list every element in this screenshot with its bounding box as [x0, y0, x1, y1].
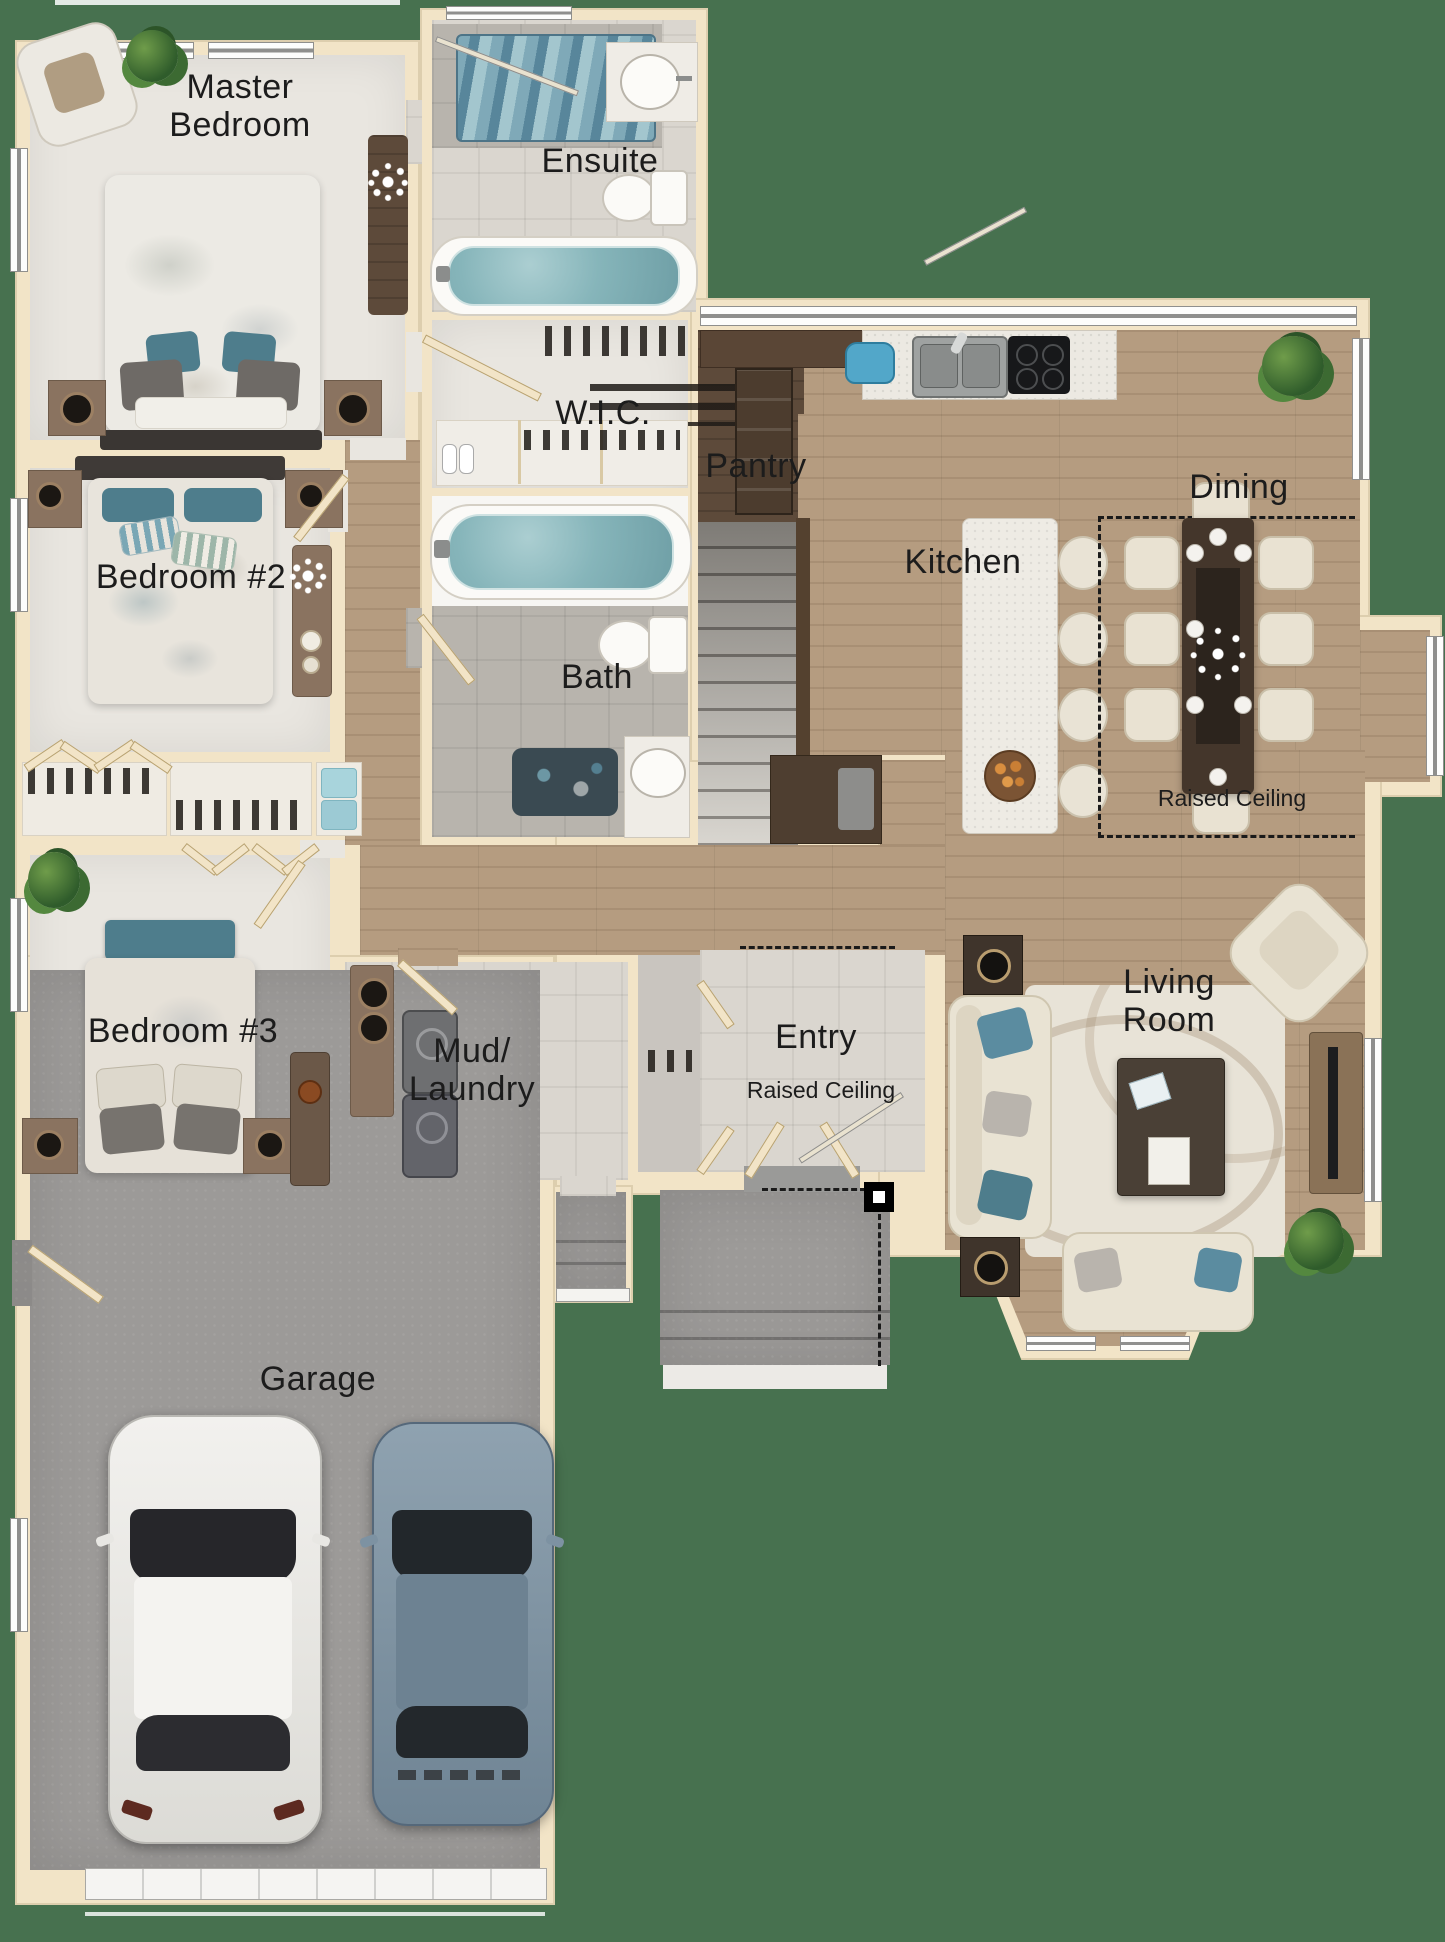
burner-icon	[1016, 344, 1038, 366]
plant-dining	[1262, 336, 1324, 396]
dining-bay-floor	[1360, 630, 1430, 782]
section-cut-mark	[924, 207, 1027, 266]
gray-pillow	[99, 1103, 165, 1155]
entry-raised-ceiling-line	[740, 946, 895, 949]
burner-icon	[1016, 368, 1038, 390]
window-bedroom3-left	[10, 898, 28, 1012]
label-entry: Entry	[716, 1018, 916, 1056]
kitchen-double-sink	[912, 336, 1008, 398]
entry-floor	[700, 950, 925, 1172]
silver-pillow	[1073, 1246, 1123, 1293]
entry-closet-shoes	[648, 1050, 692, 1072]
blue-kettle-icon	[845, 342, 895, 384]
dining-chair	[1124, 612, 1180, 666]
porch-post	[864, 1182, 894, 1212]
window-master-top-2	[208, 42, 314, 59]
car-windshield	[392, 1510, 532, 1580]
burner-icon	[1042, 368, 1064, 390]
window-garage-left	[10, 1518, 28, 1632]
bedroom3-bed	[85, 958, 255, 1173]
sandal-icon	[459, 444, 474, 474]
label-kitchen: Kitchen	[863, 543, 1063, 581]
label-master-bedroom: Master Bedroom	[150, 68, 330, 144]
porch-dashed-line	[878, 1214, 881, 1366]
teal-pillow	[184, 488, 262, 522]
window-ensuite-top	[446, 6, 572, 20]
label-bath: Bath	[497, 658, 697, 696]
window-dining-bay	[1426, 636, 1444, 776]
window-living-bay-2	[1120, 1336, 1190, 1351]
blue-pillow	[1193, 1246, 1243, 1293]
car-taillight	[121, 1799, 154, 1822]
window-dining-right	[1352, 338, 1370, 480]
teal-pillow	[976, 1168, 1034, 1221]
landing-step-line	[556, 1262, 626, 1265]
driveway-trim	[85, 1912, 545, 1916]
dining-chair	[1258, 536, 1314, 590]
floor-plan: Master Bedroom Ensuite W.I.C. Pantry Kit…	[0, 0, 1445, 1942]
eave-trim	[55, 0, 400, 5]
landing-step-line	[556, 1240, 626, 1243]
car-rear-window	[136, 1715, 290, 1771]
bath-sink	[630, 748, 686, 798]
place-setting	[1209, 768, 1227, 786]
window-living-bay-1	[1026, 1336, 1096, 1351]
car-roof	[134, 1577, 292, 1719]
side-table	[963, 935, 1023, 995]
entry-cabinet-inset	[838, 768, 874, 830]
console-basket	[358, 978, 390, 1010]
nightstand-bowl	[336, 392, 370, 426]
tv-icon	[1328, 1047, 1338, 1179]
car-windshield	[130, 1509, 296, 1583]
bedroom3-footboard-bench	[105, 920, 235, 960]
candle-icon	[302, 656, 320, 674]
blue-towels	[321, 800, 357, 830]
porch-step-line	[660, 1310, 890, 1313]
place-setting	[1234, 696, 1252, 714]
tv-console	[1309, 1032, 1363, 1194]
wic-hanging-clothes	[545, 326, 685, 356]
garage-to-landing-door	[556, 1288, 630, 1302]
place-setting	[1186, 696, 1204, 714]
silver-pillow	[981, 1090, 1032, 1138]
side-table-decor-icon	[974, 1251, 1008, 1285]
loveseat	[1062, 1232, 1254, 1332]
window-kitchen-dining-top	[700, 306, 1357, 326]
sink-basin	[962, 344, 1000, 388]
tub-faucet-icon	[436, 266, 450, 282]
garage-landing-floor	[556, 1192, 626, 1296]
tub-faucet-icon	[434, 540, 450, 558]
car-rear-grille	[398, 1770, 526, 1780]
place-setting	[1209, 528, 1227, 546]
label-ensuite: Ensuite	[500, 142, 700, 180]
place-setting	[1234, 544, 1252, 562]
window-living-right	[1364, 1038, 1382, 1202]
candle-icon	[300, 630, 322, 652]
plant-living	[1288, 1212, 1344, 1270]
master-door-gap	[350, 438, 406, 460]
porch-dashed-line	[762, 1188, 866, 1191]
armchair-pillow	[42, 50, 108, 116]
nightstand-decor	[36, 482, 64, 510]
label-wic: W.I.C.	[503, 394, 703, 432]
front-walkway	[663, 1365, 887, 1389]
label-dining: Dining	[1139, 468, 1339, 506]
ensuite-tub-water	[448, 246, 680, 306]
bath-tub-water	[448, 514, 674, 590]
flower-decor-icon	[366, 160, 410, 204]
master-bed	[105, 175, 320, 433]
car-blue	[372, 1422, 554, 1826]
bedroom3-desk	[290, 1052, 330, 1186]
master-headboard	[100, 430, 322, 450]
burner-icon	[1042, 344, 1064, 366]
fruit-bowl-icon	[984, 750, 1036, 802]
closet-shoes	[28, 768, 158, 794]
dining-chair	[1258, 612, 1314, 666]
label-mud-laundry: Mud/ Laundry	[397, 1032, 547, 1108]
blue-towels	[321, 768, 357, 798]
books-icon	[1148, 1137, 1190, 1185]
side-table	[960, 1237, 1020, 1297]
faucet-icon	[676, 76, 692, 81]
dining-chair	[1124, 536, 1180, 590]
label-pantry: Pantry	[656, 447, 856, 485]
label-bedroom2: Bedroom #2	[41, 558, 341, 596]
armchair-cushion	[1254, 905, 1345, 996]
cooktop	[1008, 336, 1070, 394]
bath-rug	[512, 748, 618, 816]
car-taillight	[273, 1799, 306, 1822]
label-dining-raised-ceiling: Raised Ceiling	[1132, 786, 1332, 811]
wic-door-gap	[406, 332, 422, 392]
label-bedroom3: Bedroom #3	[33, 1012, 333, 1050]
label-garage: Garage	[218, 1360, 418, 1398]
window-bedroom2-left	[10, 498, 28, 612]
place-setting	[1186, 544, 1204, 562]
tablet-icon	[1129, 1072, 1172, 1110]
label-entry-raised-ceiling: Raised Ceiling	[721, 1078, 921, 1103]
nightstand-candle	[34, 1130, 64, 1160]
pantry-shelves	[735, 368, 793, 515]
hallway-lower-floor	[360, 845, 945, 955]
console-basket	[358, 1012, 390, 1044]
dining-chair	[1124, 688, 1180, 742]
sofa-back	[956, 1005, 982, 1225]
porch-step-line	[660, 1337, 890, 1340]
ensuite-toilet-bowl	[602, 174, 656, 222]
window-master-left	[10, 148, 28, 272]
porch-post-center	[873, 1191, 885, 1203]
plant-bedroom3	[28, 852, 80, 908]
ensuite-door-gap	[406, 100, 422, 164]
sofa	[948, 995, 1052, 1239]
bedroom2-headboard	[75, 456, 285, 480]
car-rear-window	[396, 1706, 528, 1758]
place-setting	[1186, 620, 1204, 638]
blue-pillow	[975, 1006, 1034, 1061]
car-roof	[396, 1574, 528, 1710]
closet-hanging-clothes	[176, 800, 304, 830]
sandal-icon	[442, 444, 457, 474]
car-mirror	[545, 1533, 565, 1549]
side-table-decor-icon	[977, 949, 1011, 983]
car-white	[108, 1415, 322, 1844]
landing-door-gap	[560, 1176, 616, 1196]
garage-door	[85, 1868, 547, 1900]
great-room-floor-2	[880, 760, 945, 845]
kitchen-tall-cabinets	[700, 330, 867, 368]
nightstand-candle	[255, 1130, 285, 1160]
nightstand-bowl	[60, 392, 94, 426]
gray-pillow	[173, 1103, 241, 1155]
coffee-table	[1117, 1058, 1225, 1196]
dining-chair	[1258, 688, 1314, 742]
desk-decor-icon	[298, 1080, 322, 1104]
dryer-door-icon	[416, 1112, 448, 1144]
label-living-room: Living Room	[1089, 963, 1249, 1039]
ensuite-sink	[620, 54, 680, 110]
white-pillow-row	[135, 397, 287, 429]
